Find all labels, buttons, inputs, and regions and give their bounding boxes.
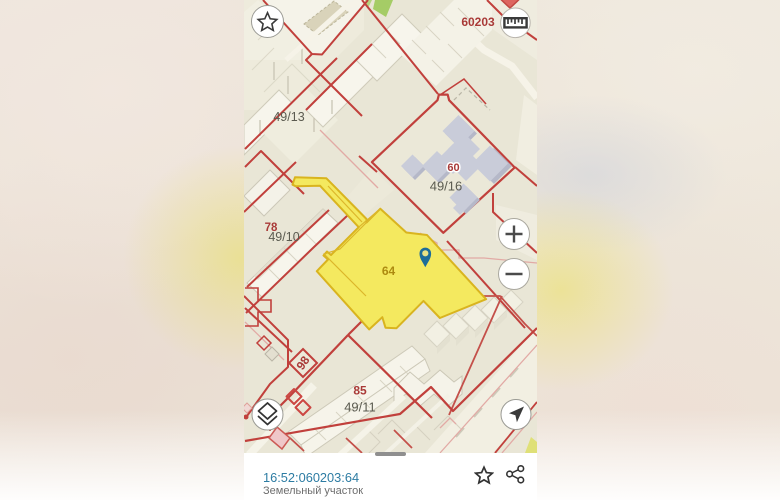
svg-text:49/11: 49/11 bbox=[344, 400, 376, 415]
svg-text:49/13: 49/13 bbox=[273, 110, 304, 124]
svg-text:60203: 60203 bbox=[461, 15, 495, 29]
svg-text:49/10: 49/10 bbox=[268, 230, 299, 244]
svg-text:85: 85 bbox=[353, 384, 367, 398]
svg-text:60: 60 bbox=[447, 162, 459, 174]
svg-text:64: 64 bbox=[382, 264, 396, 278]
svg-text:49/16: 49/16 bbox=[430, 179, 463, 194]
